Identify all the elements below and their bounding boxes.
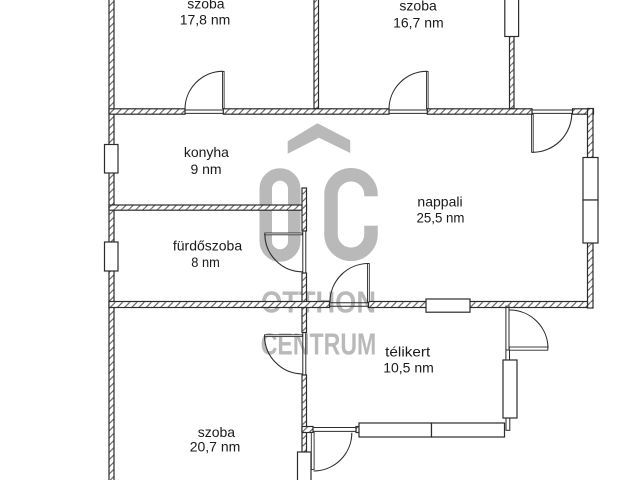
svg-text:konyha: konyha (184, 144, 229, 160)
svg-text:17,8 nm: 17,8 nm (180, 12, 231, 28)
svg-text:szoba: szoba (187, 0, 225, 11)
svg-text:CENTRUM: CENTRUM (261, 327, 377, 362)
svg-text:8 nm: 8 nm (191, 254, 220, 270)
svg-text:16,7 nm: 16,7 nm (393, 15, 444, 31)
svg-text:25,5 nm: 25,5 nm (417, 210, 465, 226)
svg-text:9 nm: 9 nm (190, 161, 221, 177)
svg-text:fürdőszoba: fürdőszoba (173, 238, 242, 254)
svg-text:10,5 nm: 10,5 nm (383, 360, 434, 376)
svg-text:20,7 nm: 20,7 nm (190, 439, 241, 455)
svg-text:télikert: télikert (385, 344, 430, 360)
svg-text:szoba: szoba (399, 0, 437, 13)
svg-text:szoba: szoba (198, 424, 236, 440)
svg-text:nappali: nappali (417, 194, 462, 210)
